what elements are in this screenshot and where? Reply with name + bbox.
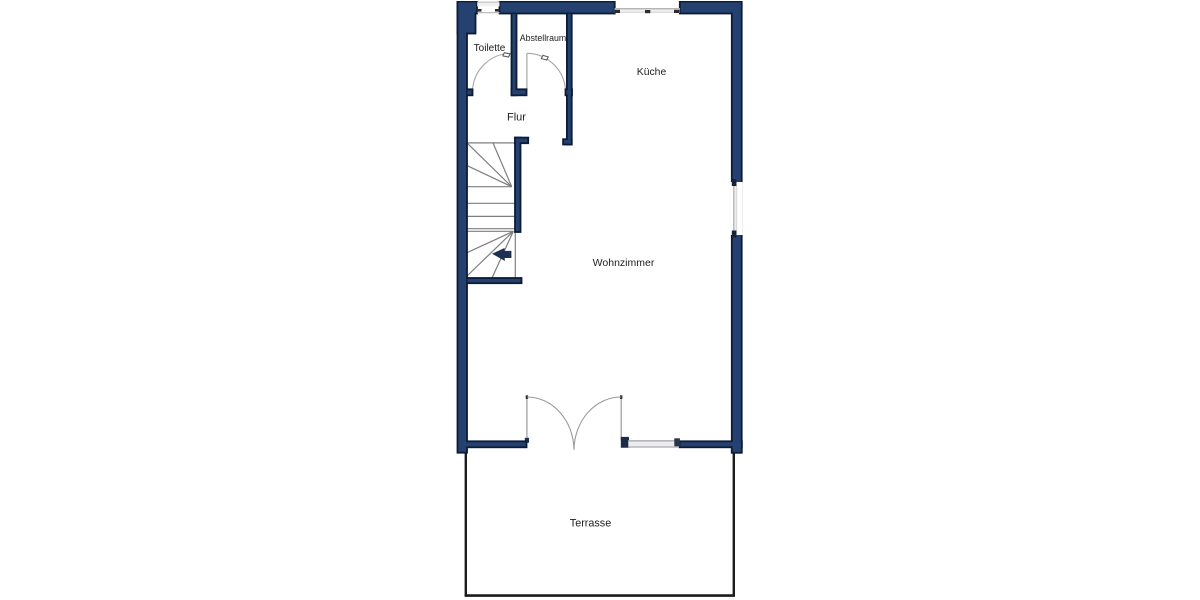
svg-text:Toilette: Toilette (474, 43, 506, 54)
svg-text:Wohnzimmer: Wohnzimmer (593, 257, 655, 269)
svg-text:Terrasse: Terrasse (570, 517, 611, 529)
svg-text:Küche: Küche (637, 67, 667, 78)
svg-text:Abstellraum: Abstellraum (520, 33, 566, 43)
svg-text:Flur: Flur (507, 111, 526, 123)
